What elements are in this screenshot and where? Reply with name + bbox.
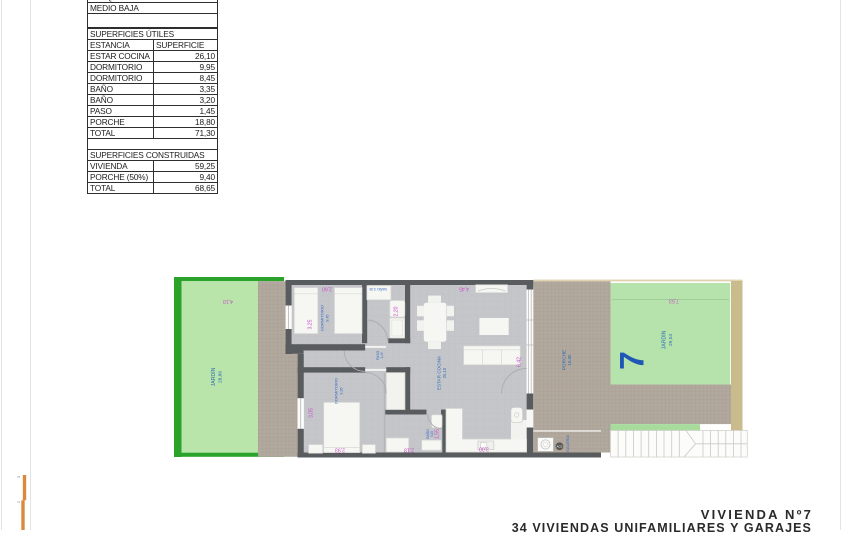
svg-text:4,45: 4,45 <box>459 286 469 292</box>
svg-text:3,00: 3,00 <box>479 446 489 452</box>
svg-text:26,10: 26,10 <box>442 367 447 378</box>
svg-text:1,45: 1,45 <box>380 352 384 358</box>
svg-text:1,55: 1,55 <box>435 429 441 439</box>
svg-text:2,18: 2,18 <box>404 447 414 453</box>
svg-text:2,60: 2,60 <box>322 286 332 292</box>
svg-text:ACS: ACS <box>557 444 563 448</box>
svg-text:4,10: 4,10 <box>223 298 233 304</box>
svg-text:2,93: 2,93 <box>335 447 345 453</box>
svg-text:8,45: 8,45 <box>326 314 330 321</box>
svg-text:2: 2 <box>16 500 21 503</box>
svg-text:DORMITORIO: DORMITORIO <box>334 378 339 404</box>
svg-text:3: 3 <box>16 475 21 478</box>
svg-text:7,53: 7,53 <box>669 298 679 304</box>
svg-text:29,53: 29,53 <box>668 334 674 346</box>
svg-text:BAÑO 3,35: BAÑO 3,35 <box>369 287 386 292</box>
svg-text:ESTAR COCINA: ESTAR COCINA <box>437 355 442 390</box>
svg-text:GALERIA: GALERIA <box>565 435 570 453</box>
svg-text:DORMITORIO: DORMITORIO <box>320 305 325 331</box>
svg-text:28,86: 28,86 <box>218 371 224 383</box>
svg-text:3,05: 3,05 <box>309 408 315 418</box>
svg-text:3,20: 3,20 <box>430 431 434 437</box>
svg-text:2,20: 2,20 <box>394 306 400 316</box>
svg-text:3,25: 3,25 <box>308 319 314 329</box>
svg-text:9,95: 9,95 <box>340 387 344 394</box>
svg-text:JARDÍN: JARDÍN <box>210 367 217 386</box>
svg-text:6,42: 6,42 <box>517 357 523 367</box>
svg-text:7: 7 <box>614 351 652 370</box>
svg-text:JARDÍN: JARDÍN <box>661 330 668 349</box>
svg-text:18,80: 18,80 <box>567 354 572 366</box>
